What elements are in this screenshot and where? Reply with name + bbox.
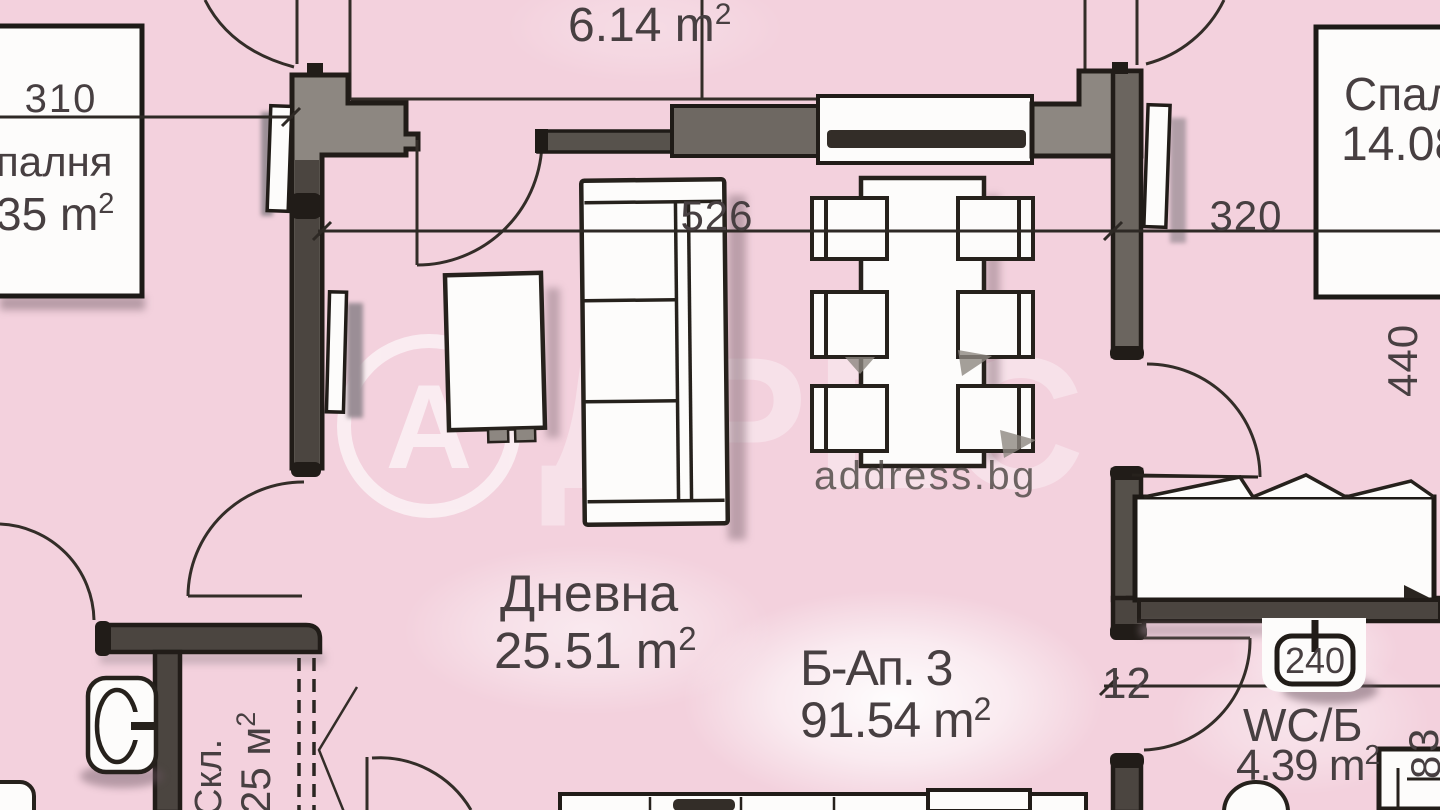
svg-text:3: 3 bbox=[1400, 729, 1440, 752]
svg-text:6.14 m2: 6.14 m2 bbox=[568, 0, 731, 52]
svg-text:526: 526 bbox=[680, 192, 753, 239]
svg-text:Б-Ап. 3: Б-Ап. 3 bbox=[800, 640, 952, 696]
svg-text:91.54 m2: 91.54 m2 bbox=[800, 691, 991, 748]
svg-text:address.bg: address.bg bbox=[814, 454, 1037, 498]
svg-text:Дневна: Дневна bbox=[500, 565, 678, 623]
svg-text:Скл.: Скл. bbox=[188, 739, 230, 810]
svg-text:320: 320 bbox=[1209, 192, 1282, 239]
svg-text:35 m2: 35 m2 bbox=[0, 188, 114, 240]
svg-text:240: 240 bbox=[1285, 640, 1345, 681]
svg-text:палня: палня bbox=[0, 138, 113, 185]
svg-text:310: 310 bbox=[25, 77, 98, 121]
svg-text:4.39 m2: 4.39 m2 bbox=[1236, 739, 1380, 790]
svg-text:8: 8 bbox=[1402, 756, 1440, 779]
svg-text:Спал: Спал bbox=[1344, 68, 1440, 120]
svg-text:25.51 m2: 25.51 m2 bbox=[494, 620, 697, 679]
svg-text:14.08: 14.08 bbox=[1341, 118, 1440, 171]
svg-text:440: 440 bbox=[1379, 324, 1426, 397]
svg-text:12: 12 bbox=[1102, 659, 1151, 708]
